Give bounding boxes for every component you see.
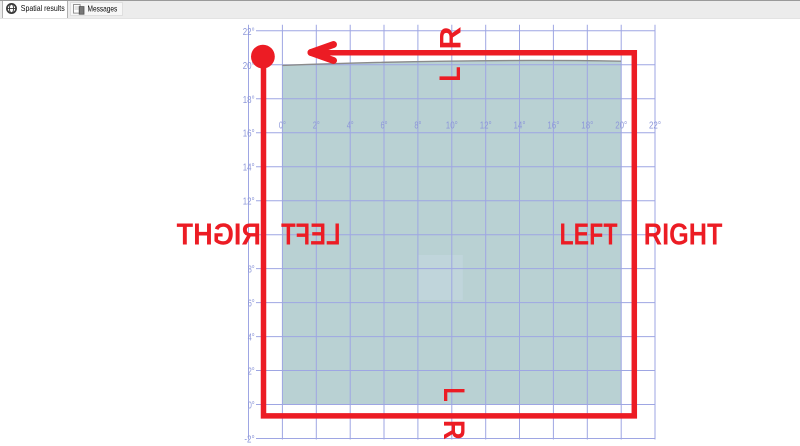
svg-text:R: R [437,420,470,440]
svg-text:12°: 12° [480,121,492,132]
svg-text:2°: 2° [313,121,320,132]
svg-text:16°: 16° [547,121,559,132]
svg-text:0°: 0° [248,401,255,412]
svg-text:14°: 14° [243,163,255,174]
svg-text:14°: 14° [514,121,526,132]
svg-text:16°: 16° [243,129,255,140]
svg-text:Spatial results: Spatial results [21,3,65,13]
svg-text:RIGHT: RIGHT [177,217,261,252]
svg-text:R: R [435,26,468,49]
svg-text:LEFT: LEFT [281,217,340,252]
svg-text:L: L [437,388,470,402]
svg-text:12°: 12° [243,197,255,208]
svg-text:8°: 8° [248,265,255,276]
svg-text:RIGHT: RIGHT [644,217,723,252]
svg-text:L: L [434,66,467,81]
svg-text:22°: 22° [243,27,255,38]
svg-text:6°: 6° [248,299,255,310]
svg-text:2°: 2° [248,367,255,378]
svg-text:Messages: Messages [88,4,118,14]
svg-text:18°: 18° [581,121,593,132]
svg-text:18°: 18° [243,95,255,106]
svg-text:20°: 20° [615,121,627,132]
svg-text:6°: 6° [381,121,388,132]
svg-text:0°: 0° [279,121,286,132]
svg-text:LEFT: LEFT [560,217,618,252]
svg-text:10°: 10° [446,121,458,132]
svg-text:22°: 22° [649,121,661,132]
svg-text:4°: 4° [248,333,255,344]
svg-text:8°: 8° [414,121,421,132]
svg-text:4°: 4° [347,121,354,132]
svg-text:-2°: -2° [244,435,254,446]
